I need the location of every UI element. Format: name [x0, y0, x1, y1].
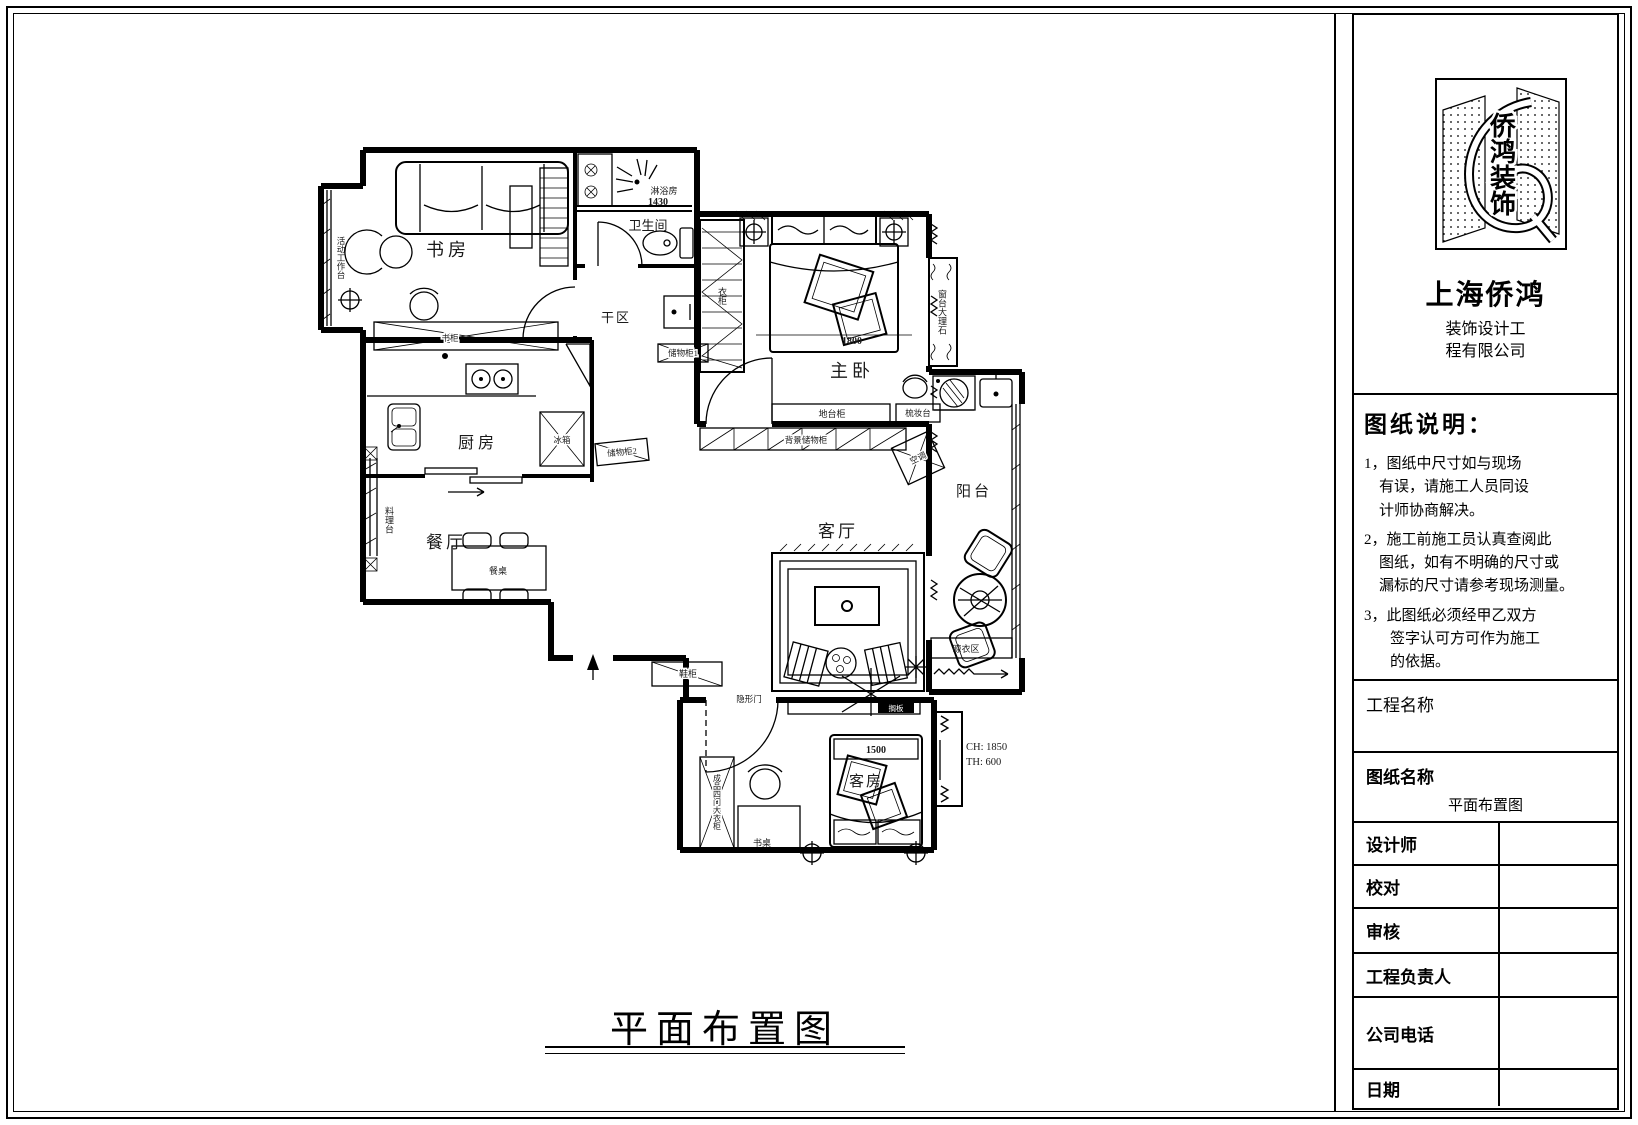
guest-chair: [748, 765, 782, 799]
review-value: [1500, 909, 1617, 952]
label-bookcase: 书柜: [441, 333, 459, 343]
company-logo: 侨鸿装饰: [1435, 78, 1567, 250]
label-air-conditioner: 空调: [908, 450, 928, 466]
review-label: 审核: [1354, 909, 1500, 952]
note-line: 漏标的尺寸请参考现场测量。: [1364, 575, 1609, 598]
notes-section: 图纸说明： 1，图纸中尺寸如与现场 有误，请施工人员同设 计师协商解决。 2，施…: [1354, 395, 1617, 681]
label-storage-cabinet-1: 储物柜1: [668, 348, 698, 358]
living-armchair-left: [784, 642, 828, 686]
label-dining-table: 餐桌: [489, 565, 507, 576]
logo-right-shape: [1517, 88, 1559, 234]
label-shower-room: 淋浴房: [650, 185, 677, 196]
label-guest-shelf: 搁板: [889, 703, 904, 713]
study-bookcase: [374, 322, 558, 350]
note-line: 1，图纸中尺寸如与现场: [1364, 453, 1609, 476]
note-line: 计师协商解决。: [1364, 500, 1609, 523]
shower-room-fixtures: [578, 154, 657, 206]
plant-star-icon: [905, 656, 927, 678]
stove: [442, 353, 518, 394]
drawing-title: 平面布置图: [545, 998, 905, 1053]
label-guest-wardrobe: 成品四门大衣柜: [713, 773, 722, 831]
company-section: 侨鸿装饰 上海侨鸿 装饰设计工 程有限公司: [1354, 15, 1617, 395]
label-dressing-table: 梳妆台: [905, 408, 931, 418]
project-manager-row: 工程负责人: [1354, 954, 1617, 998]
company-phone-row: 公司电话: [1354, 998, 1617, 1070]
entry-arrow-icon: [587, 654, 599, 680]
label-windowsill-marble: 窗台大理石: [937, 288, 947, 335]
label-hidden-door: 隐形门: [736, 694, 762, 704]
designer-row: 设计师: [1354, 823, 1617, 866]
project-manager-value: [1500, 954, 1617, 996]
balcony-sink: [980, 374, 1012, 407]
logo-text: 侨鸿装饰: [1487, 112, 1517, 216]
label-shower-dim: 1430: [648, 197, 668, 208]
date-row: 日期: [1354, 1070, 1617, 1106]
label-living-room: 客厅: [818, 522, 858, 541]
note-line: 的依据。: [1364, 651, 1609, 674]
label-kitchen: 厨房: [458, 434, 498, 452]
project-name-label: 工程名称: [1354, 681, 1617, 716]
label-storage-cabinet-2: 储物柜2: [607, 445, 638, 458]
kitchen-sliding-door: [425, 468, 522, 496]
master-downlight-right: [880, 218, 908, 246]
floor-plan: 书房 淋浴房 1430 卫生间 干区 主卧 厨房 餐厅 客厅 阳台 客房 晾衣区…: [0, 0, 1334, 1125]
label-study: 书房: [426, 240, 470, 260]
drawing-title-underline: [545, 1046, 905, 1048]
project-manager-label: 工程负责人: [1354, 954, 1500, 996]
master-bed: [756, 216, 912, 352]
company-sub-line2: 程有限公司: [1354, 337, 1617, 361]
living-side-table: [826, 648, 856, 678]
proofread-value: [1500, 866, 1617, 907]
interior-walls: [363, 150, 697, 482]
balcony-table: [954, 574, 1006, 626]
label-guest-bed-dim: 1500: [866, 745, 886, 756]
doors: [523, 222, 778, 772]
designer-label: 设计师: [1354, 823, 1500, 864]
label-drying-area: 晾衣区: [952, 643, 979, 654]
company-phone-label: 公司电话: [1354, 998, 1500, 1068]
label-master-wardrobe: 衣柜: [717, 286, 727, 306]
label-guest-desk: 书桌: [753, 837, 771, 848]
label-platform-cabinet: 地台柜: [818, 408, 845, 419]
study-chair-1: [345, 230, 412, 274]
review-row: 审核: [1354, 909, 1617, 954]
sheet-name-value: 平面布置图: [1354, 794, 1617, 815]
label-background-storage: 背景储物柜: [785, 435, 828, 445]
company-name: 上海侨鸿: [1354, 273, 1617, 313]
company-phone-value: [1500, 998, 1617, 1068]
designer-value: [1500, 823, 1617, 864]
study-chair-2: [410, 288, 438, 320]
project-name-row: 工程名称: [1354, 681, 1617, 753]
proofread-label: 校对: [1354, 866, 1500, 907]
label-window-seat-ch: CH: 1850: [966, 742, 1007, 753]
note-line: 2，施工前施工员认真查阅此: [1364, 529, 1609, 552]
kitchen-sink: [388, 404, 420, 450]
label-work-platform: 活动工作台: [336, 236, 346, 280]
label-bathroom: 卫生间: [628, 218, 667, 233]
note-line: 3，此图纸必须经甲乙双方: [1364, 605, 1609, 628]
label-guest-room: 客房: [849, 773, 883, 790]
notes-title: 图纸说明：: [1364, 405, 1609, 439]
note-line: 有误，请施工人员同设: [1364, 476, 1609, 499]
title-block-divider: [1334, 13, 1336, 1112]
label-dining-room: 餐厅: [426, 533, 466, 552]
balcony-chair-1: [962, 527, 1014, 579]
label-window-seat-th: TH: 600: [966, 757, 1001, 768]
title-block: 侨鸿装饰 上海侨鸿 装饰设计工 程有限公司 图纸说明： 1，图纸中尺寸如与现场 …: [1352, 13, 1619, 1110]
sheet-name-row: 图纸名称 平面布置图: [1354, 753, 1617, 823]
sheet-name-label: 图纸名称: [1354, 753, 1617, 788]
guest-downlight-left: [800, 841, 824, 865]
label-master-bedroom: 主卧: [830, 361, 874, 381]
label-master-bed-dim: 1800: [842, 336, 862, 347]
washing-machine: [933, 376, 975, 410]
proofread-row: 校对: [1354, 866, 1617, 909]
guest-window-seat-bay: [934, 712, 962, 806]
date-value: [1500, 1070, 1617, 1106]
note-line: 签字认可方可作为施工: [1364, 628, 1609, 651]
label-dry-area: 干区: [601, 310, 631, 325]
date-label: 日期: [1354, 1070, 1500, 1106]
label-prep-counter: 料理台: [384, 505, 394, 534]
note-line: 图纸，如有不明确的尺寸或: [1364, 552, 1609, 575]
dry-area-washbasin: [664, 296, 696, 328]
label-shoe-cabinet: 鞋柜: [679, 668, 697, 679]
drawing-title-underline-2: [545, 1053, 905, 1054]
work-platform-downlight-icon: [338, 288, 362, 312]
label-fridge: 冰箱: [553, 435, 571, 445]
logo-left-shape: [1443, 96, 1485, 242]
study-desk: [510, 186, 532, 248]
company-sub-line1: 装饰设计工: [1354, 315, 1617, 339]
label-balcony: 阳台: [956, 483, 992, 500]
kitchen-corner-cabinet: [566, 344, 590, 386]
